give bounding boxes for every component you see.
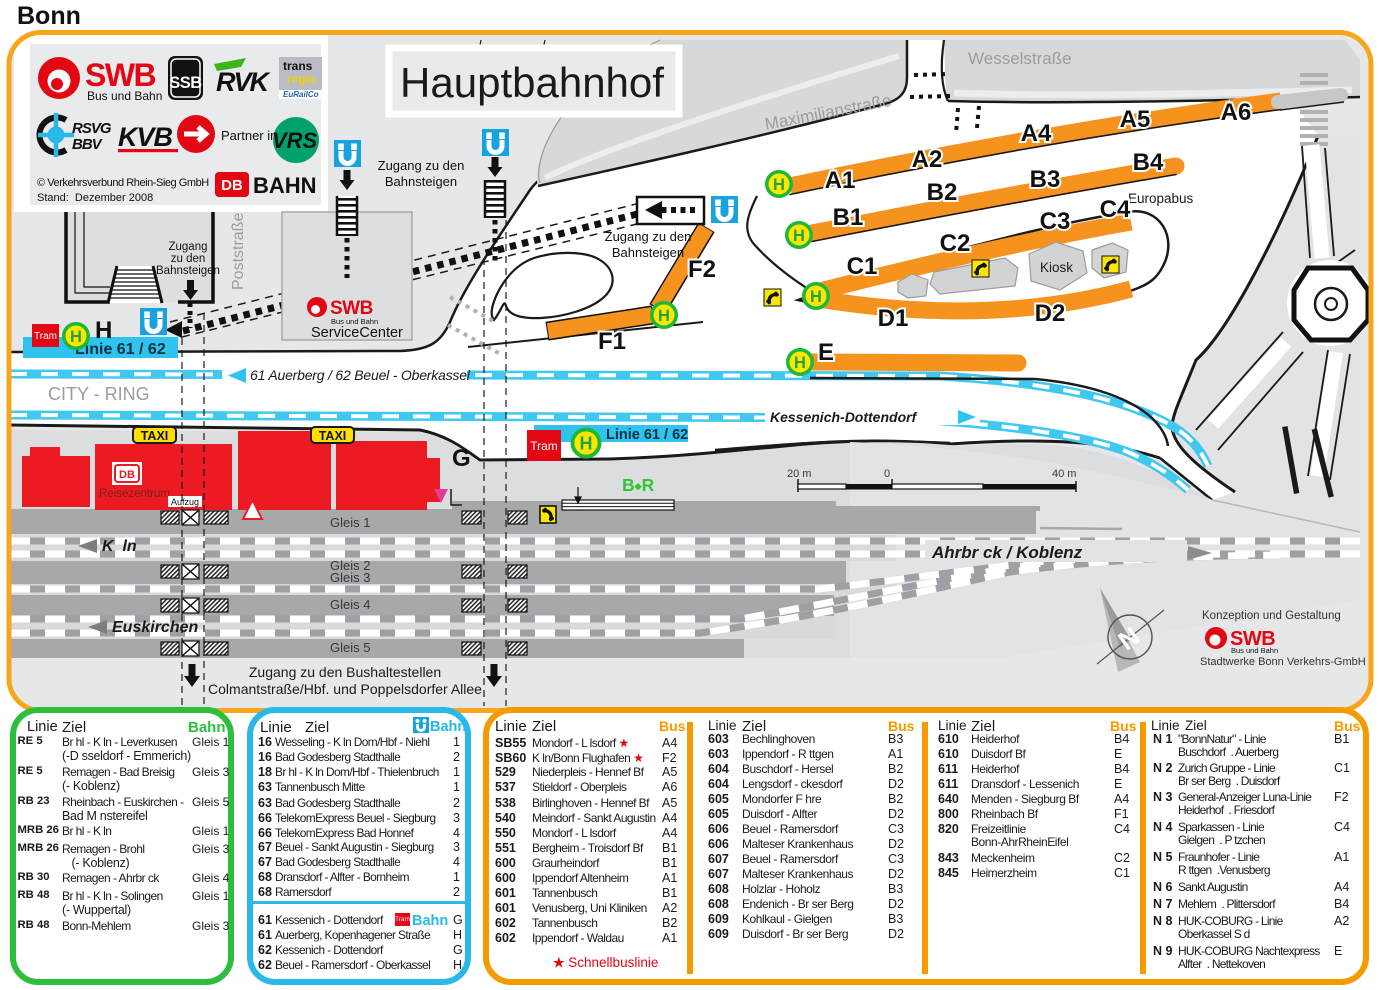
svg-text:zu den: zu den xyxy=(171,253,206,265)
svg-text:Tram: Tram xyxy=(530,439,558,453)
svg-text:Zugang zu den: Zugang zu den xyxy=(378,158,465,173)
svg-text:Stand: Dezember 2008: Stand: Dezember 2008 xyxy=(37,192,153,204)
svg-text:H: H xyxy=(773,176,785,194)
svg-text:F1: F1 xyxy=(598,328,626,355)
svg-text:C1: C1 xyxy=(847,253,878,280)
svg-text:Reisezentrum: Reisezentrum xyxy=(99,488,170,500)
svg-text:C3: C3 xyxy=(1040,208,1071,235)
svg-text:Gleis 5: Gleis 5 xyxy=(330,640,370,655)
svg-text:H: H xyxy=(810,288,822,306)
svg-text:61 Auerberg / 62 Beuel - Oberk: 61 Auerberg / 62 Beuel - Oberkassel xyxy=(250,367,471,383)
svg-text:Gleis 3: Gleis 3 xyxy=(330,570,370,585)
svg-text:Bahnsteigen: Bahnsteigen xyxy=(385,174,457,189)
svg-text:K ln: K ln xyxy=(102,538,137,555)
svg-text:Konzeption und Gestaltung: Konzeption und Gestaltung xyxy=(1202,610,1341,622)
svg-text:SWB: SWB xyxy=(85,57,156,93)
svg-text:Wesselstraße: Wesselstraße xyxy=(968,49,1072,68)
svg-text:Euskirchen: Euskirchen xyxy=(112,619,198,636)
svg-text:Ahrbr ck / Koblenz: Ahrbr ck / Koblenz xyxy=(931,543,1083,562)
svg-text:© Verkehrsverbund Rhein-Sieg G: © Verkehrsverbund Rhein-Sieg GmbH xyxy=(37,177,209,189)
svg-text:A1: A1 xyxy=(825,167,856,194)
svg-text:Europabus: Europabus xyxy=(1128,191,1194,206)
svg-text:H: H xyxy=(95,317,112,344)
svg-text:40 m: 40 m xyxy=(1052,468,1076,480)
svg-text:Bus und Bahn: Bus und Bahn xyxy=(1231,646,1278,655)
svg-text:SWB: SWB xyxy=(330,298,373,319)
svg-text:Kessenich-Dottendorf: Kessenich-Dottendorf xyxy=(770,409,918,425)
svg-text:Zugang zu den Bushaltestellen: Zugang zu den Bushaltestellen xyxy=(249,664,441,680)
svg-text:DB: DB xyxy=(221,177,243,194)
svg-text:H: H xyxy=(658,307,670,325)
svg-text:Zugang zu den: Zugang zu den xyxy=(605,229,692,244)
svg-text:C4: C4 xyxy=(1100,196,1131,223)
svg-text:F2: F2 xyxy=(688,256,716,283)
svg-text:TAXI: TAXI xyxy=(319,429,347,443)
svg-text:0: 0 xyxy=(884,468,890,480)
svg-text:A2: A2 xyxy=(912,146,943,173)
svg-text:Poststraße: Poststraße xyxy=(230,213,247,290)
svg-text:H: H xyxy=(794,354,806,372)
svg-text:Tram: Tram xyxy=(34,331,57,342)
svg-text:B2: B2 xyxy=(927,179,958,206)
svg-text:Zugang: Zugang xyxy=(168,241,207,253)
svg-text:20 m: 20 m xyxy=(787,468,811,480)
svg-text:G: G xyxy=(452,445,471,472)
svg-text:RVK: RVK xyxy=(216,67,272,97)
svg-text:C2: C2 xyxy=(940,230,971,257)
svg-text:Bus und Bahn: Bus und Bahn xyxy=(87,89,162,103)
svg-text:Gleis 4: Gleis 4 xyxy=(330,597,370,612)
svg-text:Stadtwerke Bonn Verkehrs-GmbH: Stadtwerke Bonn Verkehrs-GmbH xyxy=(1200,656,1366,668)
svg-text:BBV: BBV xyxy=(72,136,104,153)
svg-text:ServiceCenter: ServiceCenter xyxy=(311,325,403,341)
svg-text:Hauptbahnhof: Hauptbahnhof xyxy=(400,59,664,106)
svg-text:Bahnsteigen: Bahnsteigen xyxy=(156,265,220,277)
svg-text:RSVG: RSVG xyxy=(72,120,112,137)
svg-text:H: H xyxy=(580,434,593,454)
svg-text:B1: B1 xyxy=(833,204,864,231)
svg-text:Gleis 1: Gleis 1 xyxy=(330,515,370,530)
svg-text:Aufzug: Aufzug xyxy=(171,497,199,507)
svg-text:D1: D1 xyxy=(878,305,909,332)
svg-text:trans: trans xyxy=(283,59,313,73)
svg-text:BAHN: BAHN xyxy=(253,173,317,198)
svg-text:H: H xyxy=(70,328,82,346)
svg-text:Colmantstraße/Hbf. und Poppels: Colmantstraße/Hbf. und Poppelsdorfer All… xyxy=(208,681,482,697)
svg-text:Linie 61 / 62: Linie 61 / 62 xyxy=(606,427,688,443)
svg-text:CITY - RING: CITY - RING xyxy=(48,384,150,404)
svg-text:E: E xyxy=(818,339,834,366)
svg-text:B3: B3 xyxy=(1030,166,1061,193)
svg-text:KVB: KVB xyxy=(118,122,173,152)
svg-text:Bahnsteigen: Bahnsteigen xyxy=(612,245,684,260)
svg-text:regio: regio xyxy=(287,72,316,86)
svg-text:D2: D2 xyxy=(1035,300,1066,327)
svg-text:TAXI: TAXI xyxy=(141,429,169,443)
svg-text:DB: DB xyxy=(119,469,135,481)
svg-text:SSB: SSB xyxy=(169,74,202,92)
svg-text:H: H xyxy=(793,227,805,245)
svg-text:VRS: VRS xyxy=(272,128,318,153)
svg-text:EuRailCo: EuRailCo xyxy=(283,90,319,99)
svg-text:B4: B4 xyxy=(1133,149,1164,176)
svg-text:A6: A6 xyxy=(1221,99,1252,126)
svg-text:A4: A4 xyxy=(1021,120,1052,147)
svg-text:Linie 61 / 62: Linie 61 / 62 xyxy=(75,341,166,358)
svg-text:A5: A5 xyxy=(1120,106,1151,133)
svg-text:Kiosk: Kiosk xyxy=(1040,260,1073,275)
